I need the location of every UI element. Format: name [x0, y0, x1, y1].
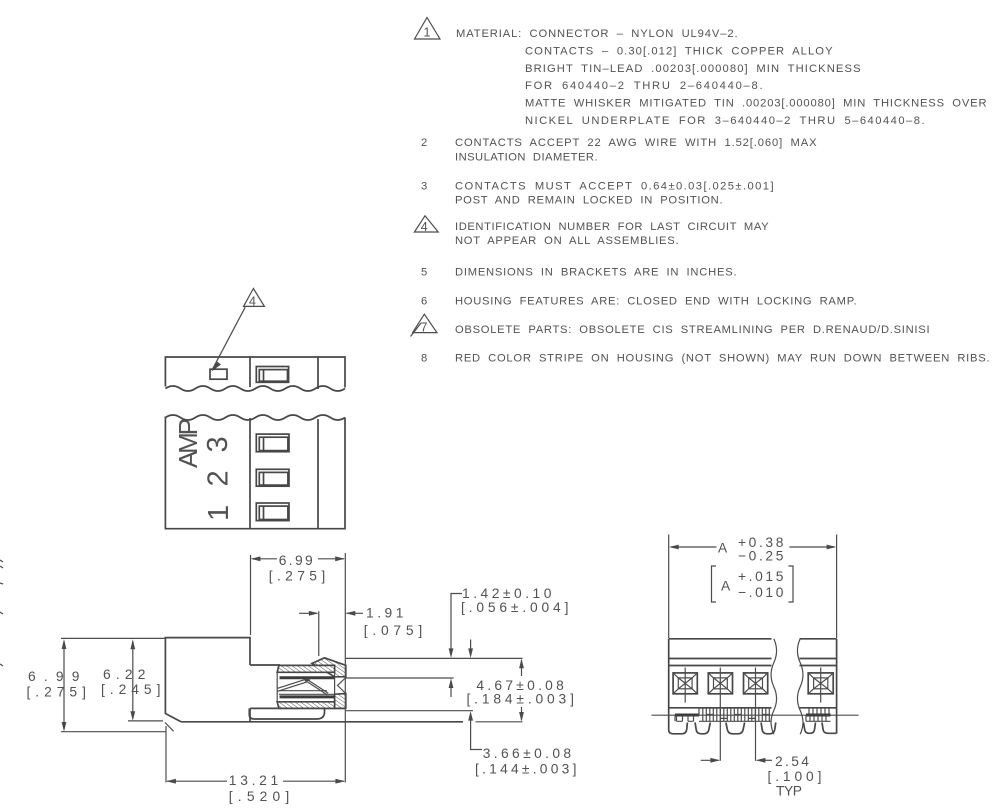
svg-text:1.42±0.10: 1.42±0.10: [462, 586, 555, 601]
svg-text:DIMENSIONS IN BRACKETS ARE IN: DIMENSIONS IN BRACKETS ARE IN INCHES.: [455, 267, 738, 279]
svg-text:6.22: 6.22: [103, 667, 149, 682]
svg-text:FOR 640440–2 THRU 2–640440–8.: FOR 640440–2 THRU 2–640440–8.: [525, 80, 764, 92]
svg-text:2: 2: [421, 137, 429, 149]
svg-text:OBSOLETE PARTS: OBSOLETE CIS S: OBSOLETE PARTS: OBSOLETE CIS STREAMLININ…: [455, 324, 931, 336]
svg-text:CONTACTS – 0.30[.012] THICK CO: CONTACTS – 0.30[.012] THICK COPPER ALLOY: [525, 45, 834, 57]
svg-text:+.015: +.015: [738, 569, 787, 584]
svg-text:NICKEL UNDERPLATE FOR 3–640440: NICKEL UNDERPLATE FOR 3–640440–2 THRU 5–…: [525, 115, 926, 127]
svg-text:A: A: [718, 541, 731, 556]
svg-text:6.99: 6.99: [279, 553, 317, 568]
svg-text:4: 4: [249, 295, 256, 309]
svg-text:1.91: 1.91: [366, 606, 407, 621]
svg-text:3: 3: [202, 436, 234, 452]
svg-text:[.056±.004]: [.056±.004]: [461, 600, 572, 615]
svg-text:4: 4: [421, 220, 428, 234]
svg-text:MATTE WHISKER MITIGATED TIN .0: MATTE WHISKER MITIGATED TIN .00203[.0000…: [525, 98, 988, 110]
svg-text:3.66±0.08: 3.66±0.08: [483, 746, 575, 761]
svg-text:2: 2: [203, 470, 235, 486]
svg-text:7: 7: [421, 320, 428, 334]
svg-text:−0.25: −0.25: [738, 549, 787, 564]
svg-text:5: 5: [421, 267, 429, 279]
svg-text:6: 6: [421, 295, 429, 307]
svg-text:[.075]: [.075]: [364, 623, 426, 638]
svg-text:1: 1: [424, 26, 431, 40]
svg-text:RED COLOR STRIPE ON HOUSING (N: RED COLOR STRIPE ON HOUSING (NOT SHOWN) …: [455, 353, 991, 365]
svg-text:POST AND REMAIN LOCKED IN POSI: POST AND REMAIN LOCKED IN POSITION.: [455, 195, 724, 207]
svg-text:[.520]: [.520]: [229, 789, 293, 804]
svg-text:[.275]: [.275]: [269, 569, 329, 584]
svg-text:A: A: [721, 579, 734, 594]
svg-text:HOUSING FEATURES ARE: CLOSED E: HOUSING FEATURES ARE: CLOSED END WITH LO…: [455, 295, 858, 307]
svg-text:−.010: −.010: [738, 585, 787, 600]
svg-text:[.144±.003]: [.144±.003]: [475, 762, 580, 777]
svg-text:[.100]: [.100]: [768, 769, 826, 784]
svg-text:INSULATION DIAMETER.: INSULATION DIAMETER.: [455, 151, 599, 163]
svg-text:13.21: 13.21: [229, 773, 282, 788]
svg-text:[.275]: [.275]: [27, 685, 90, 700]
svg-text:CONTACTS ACCEPT 22 AWG WIRE WI: CONTACTS ACCEPT 22 AWG WIRE WITH 1.52[.0…: [455, 137, 818, 149]
svg-text:MATERIAL: CONNECTOR – NYLON UL: MATERIAL: CONNECTOR – NYLON UL94V–2.: [456, 28, 739, 40]
svg-text:3: 3: [421, 181, 429, 193]
svg-text:[.245]: [.245]: [101, 682, 164, 697]
svg-text:1: 1: [203, 505, 235, 521]
svg-text:6.99: 6.99: [28, 669, 83, 684]
svg-text:NOT APPEAR ON ALL ASSEMBLIES.: NOT APPEAR ON ALL ASSEMBLIES.: [455, 235, 680, 247]
svg-text:AMP: AMP: [173, 418, 203, 468]
svg-text:BRIGHT TIN–LEAD .00203[.000080: BRIGHT TIN–LEAD .00203[.000080] MIN THIC…: [525, 63, 862, 75]
svg-text:TYP: TYP: [776, 784, 806, 799]
svg-text:[.184±.003]: [.184±.003]: [467, 692, 578, 707]
svg-text:CONTACTS MUST ACCEPT 0.64±0.03: CONTACTS MUST ACCEPT 0.64±0.03[.025±.001…: [455, 181, 775, 193]
svg-text:2.54: 2.54: [775, 754, 813, 769]
svg-text:IDENTIFICATION NUMBER FOR LAST: IDENTIFICATION NUMBER FOR LAST CIRCUIT M…: [455, 221, 770, 233]
svg-text:8: 8: [421, 353, 429, 365]
